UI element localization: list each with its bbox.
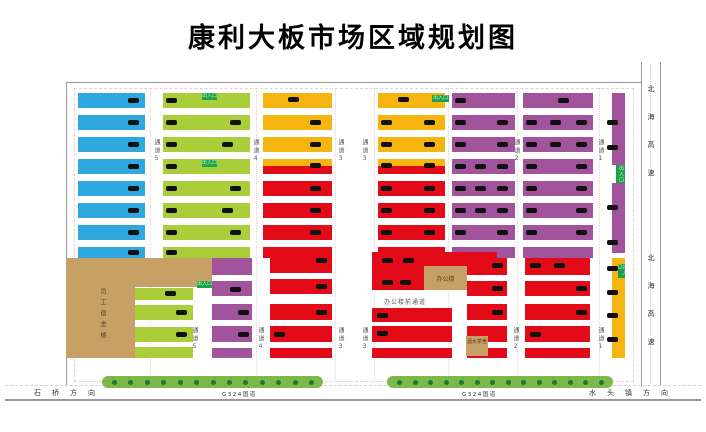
tree-dot: [490, 380, 495, 385]
stall-block: [263, 181, 332, 196]
gate-mark: [576, 120, 587, 125]
tree-dot: [293, 380, 298, 385]
aisle-label: 通道5: [190, 327, 198, 352]
gate-mark: [310, 142, 321, 147]
gate-mark: [576, 186, 587, 191]
direction-label-right: 水头镇方向: [589, 388, 679, 398]
stall-block: [263, 159, 332, 166]
gate-mark: [492, 286, 503, 291]
gate-mark: [526, 142, 537, 147]
gate-mark: [607, 337, 618, 342]
gate-mark: [576, 286, 587, 291]
gate-mark: [166, 142, 177, 147]
gate-mark: [128, 98, 139, 103]
gate-mark: [455, 164, 466, 169]
tree-dot: [243, 380, 248, 385]
gate-mark: [475, 164, 486, 169]
gate-mark: [316, 284, 327, 289]
entrance-tag: 出入口: [616, 165, 625, 183]
stall-block: [263, 137, 332, 152]
gate-mark: [166, 230, 177, 235]
tree-dot: [413, 380, 418, 385]
stall-block: [372, 348, 452, 358]
gate-mark: [377, 331, 388, 336]
gate-mark: [310, 163, 321, 168]
aisle-label: 通道5: [152, 139, 160, 164]
gate-mark: [166, 98, 177, 103]
gate-mark: [558, 98, 569, 103]
gate-mark: [492, 263, 503, 268]
stall-block: [270, 348, 332, 358]
gate-mark: [455, 120, 466, 125]
gate-mark: [400, 280, 411, 285]
gate-mark: [475, 186, 486, 191]
tree-dot: [397, 380, 402, 385]
highway-label: 北海高速: [646, 85, 656, 197]
gate-mark: [222, 208, 233, 213]
stall-block: [523, 247, 593, 258]
highway-label: 北海高速: [646, 254, 656, 366]
gate-mark: [530, 332, 541, 337]
tree-dot: [444, 380, 449, 385]
aisle-label: 通道3: [336, 327, 344, 352]
gate-mark: [550, 142, 561, 147]
tree-dot: [178, 380, 183, 385]
gate-mark: [381, 230, 392, 235]
gate-mark: [576, 310, 587, 315]
gate-mark: [607, 266, 618, 271]
gate-mark: [607, 290, 618, 295]
boundary-line: [641, 62, 642, 386]
office-front-aisle-label: 办公楼前通道: [384, 297, 426, 306]
stall-block: [263, 115, 332, 130]
stall-block: [263, 166, 332, 174]
stall-block: [525, 348, 590, 358]
building-label: 员工宿舍楼: [98, 288, 107, 343]
gate-mark: [316, 258, 327, 263]
gate-mark: [166, 164, 177, 169]
gate-mark: [274, 332, 285, 337]
gate-mark: [607, 313, 618, 318]
gate-mark: [128, 208, 139, 213]
tree-dot: [128, 380, 133, 385]
tree-dot: [475, 380, 480, 385]
entrance-tag: 出入口: [202, 160, 217, 167]
building-label: 办公楼: [424, 274, 467, 283]
direction-label-left: 石桥方向: [34, 388, 106, 398]
aisle-label: 通道3: [360, 327, 368, 352]
gate-mark: [607, 145, 618, 150]
gate-mark: [166, 186, 177, 191]
gate-mark: [310, 208, 321, 213]
gate-mark: [403, 258, 414, 263]
boundary-line: [660, 62, 661, 386]
gate-mark: [382, 258, 393, 263]
tree-dot: [521, 380, 526, 385]
gate-mark: [424, 163, 435, 168]
tree-dot: [161, 380, 166, 385]
gate-mark: [166, 120, 177, 125]
gate-mark: [128, 142, 139, 147]
gate-mark: [455, 98, 466, 103]
gate-mark: [176, 332, 187, 337]
gate-mark: [576, 142, 587, 147]
tree-dot: [194, 380, 199, 385]
aisle-label: 通道4: [251, 139, 259, 164]
tree-dot: [459, 380, 464, 385]
gate-mark: [526, 208, 537, 213]
gate-mark: [607, 205, 618, 210]
gate-mark: [230, 186, 241, 191]
stall-block: [212, 348, 252, 358]
tree-dot: [428, 380, 433, 385]
gate-mark: [424, 230, 435, 235]
stall-block: [263, 225, 332, 240]
stall-block: [263, 203, 332, 218]
gate-mark: [238, 310, 249, 315]
stall-block: [135, 347, 193, 358]
tree-dot: [309, 380, 314, 385]
tree-dot: [112, 380, 117, 385]
aisle-label: 通道1: [596, 327, 604, 352]
gate-mark: [497, 120, 508, 125]
tree-dot: [145, 380, 150, 385]
building-label: 酒水茶舍: [467, 339, 487, 346]
gate-mark: [550, 120, 561, 125]
gate-mark: [310, 230, 321, 235]
gate-mark: [230, 230, 241, 235]
aisle-label: 通道3: [360, 139, 368, 164]
stall-block: [212, 258, 252, 275]
gate-mark: [316, 310, 327, 315]
aisle-label: 通道3: [336, 139, 344, 164]
boundary-line: [66, 82, 641, 83]
gate-mark: [128, 164, 139, 169]
entrance-tag: 出入口: [197, 281, 212, 288]
aisle-label: 通道2: [511, 327, 519, 352]
gate-mark: [576, 230, 587, 235]
gate-mark: [424, 186, 435, 191]
gate-mark: [424, 120, 435, 125]
gate-mark: [222, 142, 233, 147]
aisle-label: 通道4: [256, 327, 264, 352]
gate-mark: [497, 142, 508, 147]
tree-dot: [506, 380, 511, 385]
gate-mark: [554, 263, 565, 268]
gate-mark: [381, 186, 392, 191]
tree-dot: [260, 380, 265, 385]
page-title: 康利大板市场区域规划图: [0, 16, 706, 55]
gate-mark: [607, 240, 618, 245]
gate-mark: [424, 142, 435, 147]
tree-dot: [276, 380, 281, 385]
national-road-label: G324国道: [222, 390, 257, 398]
gate-mark: [424, 208, 435, 213]
gate-mark: [497, 164, 508, 169]
gate-mark: [381, 142, 392, 147]
entrance-tag: 出入口: [202, 93, 217, 100]
gate-mark: [381, 163, 392, 168]
gate-mark: [128, 120, 139, 125]
gate-mark: [455, 186, 466, 191]
gate-mark: [165, 291, 176, 296]
gate-mark: [398, 97, 409, 102]
gate-mark: [382, 280, 393, 285]
gate-mark: [288, 97, 299, 102]
tree-dot: [552, 380, 557, 385]
gate-mark: [576, 164, 587, 169]
aisle-label: 通道1: [596, 139, 604, 164]
gate-mark: [526, 164, 537, 169]
gate-mark: [377, 313, 388, 318]
market-plan-map: 康利大板市场区域规划图 员工宿舍楼办公楼酒水茶舍出入口出入口出入口出入口出入口出…: [0, 0, 706, 432]
gate-mark: [526, 186, 537, 191]
gate-mark: [230, 120, 241, 125]
gate-mark: [381, 208, 392, 213]
gate-mark: [128, 186, 139, 191]
tree-strip: [387, 376, 613, 388]
gate-mark: [166, 250, 177, 255]
tree-dot: [537, 380, 542, 385]
gate-mark: [128, 250, 139, 255]
gate-mark: [238, 332, 249, 337]
boundary-line: [5, 399, 701, 401]
tree-dot: [599, 380, 604, 385]
gate-mark: [455, 208, 466, 213]
gate-mark: [166, 208, 177, 213]
tree-dot: [211, 380, 216, 385]
stall-block: [372, 273, 424, 290]
gate-mark: [497, 208, 508, 213]
national-road-label: G324国道: [462, 390, 497, 398]
gate-mark: [497, 230, 508, 235]
gate-mark: [475, 208, 486, 213]
gate-mark: [526, 230, 537, 235]
building-block: [66, 258, 212, 287]
gate-mark: [607, 120, 618, 125]
gate-mark: [455, 142, 466, 147]
tree-dot: [568, 380, 573, 385]
gate-mark: [526, 120, 537, 125]
entrance-tag: 出入口: [618, 264, 625, 278]
gate-mark: [310, 186, 321, 191]
stall-block: [612, 93, 625, 165]
gate-mark: [128, 230, 139, 235]
gate-mark: [310, 120, 321, 125]
gate-mark: [497, 186, 508, 191]
gate-mark: [381, 120, 392, 125]
gate-mark: [576, 208, 587, 213]
entrance-tag: 出入口: [432, 95, 449, 102]
stall-block: [135, 288, 193, 300]
gate-mark: [176, 310, 187, 315]
aisle-label: 通道2: [512, 139, 520, 164]
tree-dot: [227, 380, 232, 385]
gate-mark: [492, 310, 503, 315]
gate-mark: [230, 287, 241, 292]
gate-mark: [530, 263, 541, 268]
gate-mark: [455, 230, 466, 235]
